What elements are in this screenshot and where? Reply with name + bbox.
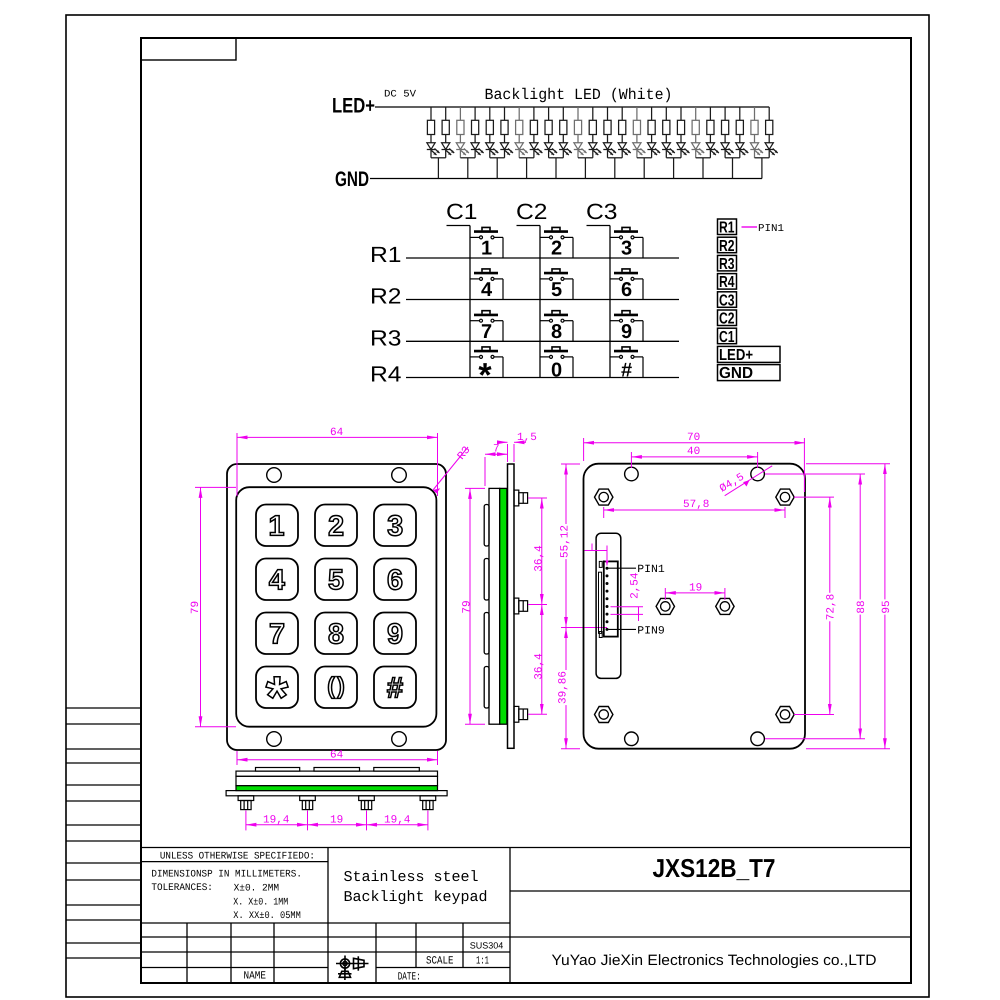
svg-text:5: 5 xyxy=(551,279,562,301)
svg-text:C3: C3 xyxy=(586,199,618,224)
svg-text:PIN9: PIN9 xyxy=(637,625,665,637)
svg-text:DATE:: DATE: xyxy=(398,972,421,984)
svg-text:SCALE: SCALE xyxy=(426,955,454,967)
svg-text:70: 70 xyxy=(687,432,700,444)
svg-text:C1: C1 xyxy=(719,329,735,346)
svg-text:C3: C3 xyxy=(719,292,735,309)
svg-text:88: 88 xyxy=(856,600,868,613)
svg-text:79: 79 xyxy=(462,600,474,613)
svg-text:36,4: 36,4 xyxy=(533,653,545,680)
svg-text:95: 95 xyxy=(881,600,893,613)
svg-text:C1: C1 xyxy=(446,199,478,224)
svg-text:SUS304: SUS304 xyxy=(470,941,504,951)
svg-text:R2: R2 xyxy=(719,238,735,255)
svg-text:#: # xyxy=(621,360,632,382)
svg-text:3: 3 xyxy=(621,238,632,260)
svg-text:R2: R2 xyxy=(370,284,402,309)
svg-text:R1: R1 xyxy=(719,220,735,237)
svg-text:X. XX±0. 05MM: X. XX±0. 05MM xyxy=(233,911,300,922)
svg-text:Stainless steel: Stainless steel xyxy=(344,869,479,886)
svg-text:72,8: 72,8 xyxy=(825,594,837,620)
svg-text:64: 64 xyxy=(330,749,344,761)
svg-text:79: 79 xyxy=(190,601,202,614)
svg-text:64: 64 xyxy=(330,427,344,439)
svg-text:1:1: 1:1 xyxy=(476,956,489,968)
svg-text:40: 40 xyxy=(687,446,700,458)
svg-text:GND: GND xyxy=(335,168,369,191)
svg-text:19,4: 19,4 xyxy=(263,814,290,826)
svg-text:UNLESS OTHERWISE SPECIFIEDO:: UNLESS OTHERWISE SPECIFIEDO: xyxy=(160,851,315,862)
svg-text:2,54: 2,54 xyxy=(629,572,641,599)
svg-text:55,12: 55,12 xyxy=(559,525,571,558)
svg-text:DIMENSIONSP IN MILLIMETERS.: DIMENSIONSP IN MILLIMETERS. xyxy=(151,869,302,880)
svg-text:2: 2 xyxy=(551,238,562,260)
svg-text:R3: R3 xyxy=(719,256,735,273)
svg-text:R4: R4 xyxy=(719,274,735,291)
svg-text:PIN1: PIN1 xyxy=(637,564,665,576)
svg-text:C2: C2 xyxy=(516,199,548,224)
svg-text:6: 6 xyxy=(621,279,632,301)
svg-text:DC 5V: DC 5V xyxy=(384,90,416,101)
svg-text:1: 1 xyxy=(481,238,492,260)
svg-text:LED+: LED+ xyxy=(719,347,753,364)
svg-text:*: * xyxy=(478,357,492,395)
svg-text:GND: GND xyxy=(719,365,753,382)
svg-text:Backlight keypad: Backlight keypad xyxy=(344,889,488,906)
svg-text:19: 19 xyxy=(330,815,343,827)
svg-text:7: 7 xyxy=(481,321,492,343)
svg-text:PIN1: PIN1 xyxy=(758,223,784,235)
svg-text:X±0. 2MM: X±0. 2MM xyxy=(234,883,280,894)
svg-text:8: 8 xyxy=(551,321,562,343)
svg-text:NAME: NAME xyxy=(244,971,267,983)
svg-text:TOLERANCES:: TOLERANCES: xyxy=(151,883,213,894)
svg-text:39,86: 39,86 xyxy=(557,671,569,704)
svg-text:R1: R1 xyxy=(370,242,402,267)
svg-text:7: 7 xyxy=(493,444,500,456)
svg-text:R3: R3 xyxy=(370,325,402,350)
svg-text:X. X±0. 1MM: X. X±0. 1MM xyxy=(233,898,288,909)
svg-text:1,5: 1,5 xyxy=(517,432,537,444)
svg-text:LED+: LED+ xyxy=(332,95,375,118)
svg-text:JXS12B_T7: JXS12B_T7 xyxy=(653,853,776,883)
svg-text:Backlight LED (White): Backlight LED (White) xyxy=(485,86,673,104)
svg-text:57,8: 57,8 xyxy=(683,499,709,511)
svg-text:4: 4 xyxy=(481,279,493,301)
svg-text:19,4: 19,4 xyxy=(384,814,411,826)
svg-text:R4: R4 xyxy=(370,362,402,387)
svg-text:0: 0 xyxy=(551,360,562,382)
svg-text:36,4: 36,4 xyxy=(533,545,545,572)
svg-text:9: 9 xyxy=(621,321,632,343)
svg-text:19: 19 xyxy=(689,583,702,595)
svg-text:YuYao JieXin Electronics Techn: YuYao JieXin Electronics Technologies co… xyxy=(552,952,877,969)
svg-text:C2: C2 xyxy=(719,311,735,328)
